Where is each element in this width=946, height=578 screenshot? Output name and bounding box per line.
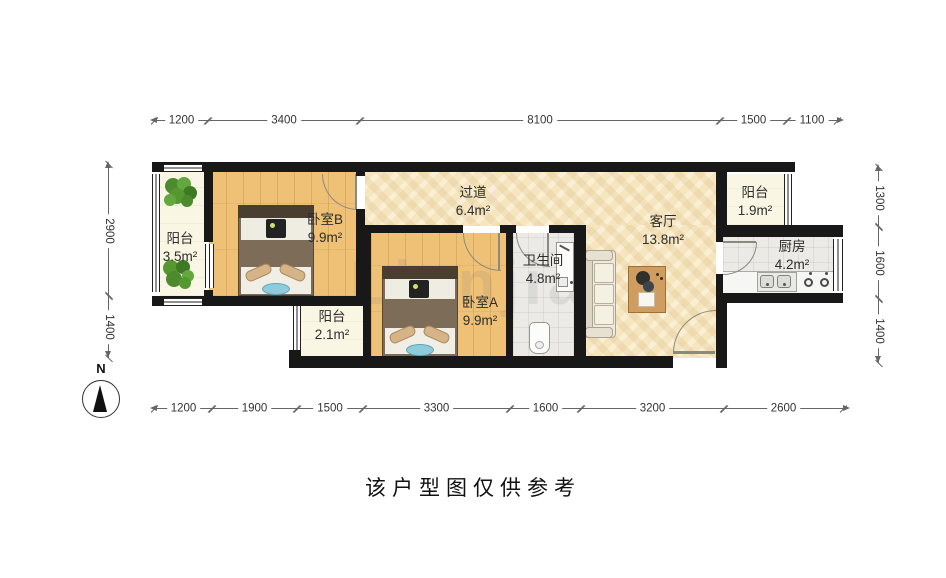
dim-bottom-5: 1600 [510,408,581,409]
room-label-balcony-small: 阳台 2.1m² [301,308,363,344]
dim-right-2: 1600 [878,227,879,299]
wall-segment [204,290,213,306]
room-name: 过道 [441,184,505,202]
dim-arrow-icon [837,117,844,123]
dim-value: 1400 [873,314,885,348]
dim-bottom-1: 1200 [155,408,212,409]
dim-value: 1300 [873,181,885,215]
room-area: 2.1m² [301,326,363,344]
dim-bottom-7: 2600 [724,408,843,409]
room-area: 1.9m² [723,202,787,220]
dim-top-4: 1500 [720,120,787,121]
wall-segment [289,350,301,368]
room-name: 阳台 [301,308,363,326]
dim-top-5: 1100 [787,120,837,121]
dim-value: 3200 [636,402,670,414]
wall-segment [716,225,843,237]
dim-value: 1600 [529,402,563,414]
room-area: 6.4m² [441,202,505,220]
bed-a-headboard [382,266,458,279]
kitchen-sink [760,275,774,288]
table-plate [638,292,655,307]
sink-drain-dot [766,283,769,286]
room-label-bedroom-b: 卧室B 9.9m² [293,211,357,247]
room-name: 卧室B [293,211,357,229]
toilet [529,322,550,354]
room-name: 卧室A [446,294,514,312]
dim-value: 1100 [796,114,829,126]
dim-value: 1200 [165,114,199,126]
wall-segment [716,237,723,242]
stove-burner-icon [804,278,813,287]
room-name: 厨房 [756,238,828,256]
wall-segment [716,293,727,368]
dim-right-3: 1400 [878,299,879,363]
room-area: 4.8m² [510,270,576,288]
table-decor-dot [656,273,659,276]
tv-icon [409,280,429,298]
dim-top-2: 3400 [208,120,360,121]
window [833,239,843,291]
wall-segment [356,162,365,176]
dim-arrow-icon [105,161,111,168]
table-decor-dot [660,277,663,280]
room-name: 客厅 [627,213,699,231]
tv-icon [266,219,286,238]
room-area: 13.8m² [627,231,699,249]
sofa-cushion [594,263,614,283]
room-label-kitchen: 厨房 4.2m² [756,238,828,274]
room-area: 3.5m² [152,248,208,266]
tv-light [413,284,418,289]
dim-arrow-icon [843,405,850,411]
table-decor-vase [643,281,654,292]
sink-drain-dot [783,283,786,286]
dim-arrow-icon [875,356,881,363]
door-leaf [723,241,756,243]
dim-arrow-icon [150,117,157,123]
caption: 该户型图仅供参考 [0,472,946,502]
dim-value: 3400 [267,114,301,126]
bed-a-stool [406,344,434,356]
dim-value: 2600 [767,402,801,414]
room-label-living: 客厅 13.8m² [627,213,699,249]
wall-segment [574,225,586,358]
dim-value: 1400 [103,310,115,344]
room-label-balcony-left: 阳台 3.5m² [152,230,208,266]
bed-b-stool [262,283,290,295]
kitchen-sink [777,275,791,288]
room-label-balcony-top: 阳台 1.9m² [723,184,787,220]
wall-segment [500,225,516,233]
window [164,298,202,306]
sofa-arm [585,327,613,338]
dim-arrow-icon [875,164,881,171]
wall-segment [716,293,843,303]
room-name: 阳台 [723,184,787,202]
door-leaf [355,174,357,209]
room-label-bathroom: 卫生间 4.8m² [510,252,576,288]
door-leaf [673,351,715,354]
dim-arrow-icon [150,405,157,411]
tv-light [270,223,275,228]
stove-burner-icon [820,278,829,287]
wall-segment [716,274,723,293]
dim-value: 2900 [103,214,115,248]
dim-bottom-3: 1500 [297,408,363,409]
floorplan-page: Lianjia [0,0,946,578]
wall-segment [152,162,795,172]
dim-value: 1900 [238,402,272,414]
dim-value: 3300 [420,402,454,414]
dim-value: 1500 [737,114,771,126]
dim-bottom-4: 3300 [363,408,510,409]
dim-left-2: 1400 [108,296,109,358]
north-arrow-icon [82,380,120,418]
toilet-seat [535,341,544,349]
room-label-hallway: 过道 6.4m² [441,184,505,220]
room-name: 卫生间 [510,252,576,270]
wall-segment [363,225,371,368]
window [293,306,301,350]
window [164,164,202,172]
dim-left-1: 2900 [108,165,109,296]
dim-value: 1600 [873,246,885,280]
dim-top-3: 8100 [360,120,720,121]
room-area: 9.9m² [446,312,514,330]
dim-bottom-2: 1900 [212,408,297,409]
wall-segment [363,225,463,233]
dim-value: 1200 [167,402,201,414]
dim-bottom-6: 3200 [581,408,724,409]
room-label-bedroom-a: 卧室A 9.9m² [446,294,514,330]
wall-segment [293,356,673,368]
room-area: 4.2m² [756,256,828,274]
dim-arrow-icon [105,351,111,358]
plant-icon [162,176,198,209]
dim-right-1: 1300 [878,168,879,227]
dim-value: 1500 [313,402,347,414]
north-label: N [82,361,120,376]
dim-value: 8100 [523,114,557,126]
sofa-cushion [594,305,614,325]
room-name: 阳台 [152,230,208,248]
door-leaf [498,233,500,270]
room-area: 9.9m² [293,229,357,247]
dim-top-1: 1200 [155,120,208,121]
sofa-cushion [594,284,614,304]
sofa-arm [585,250,613,261]
